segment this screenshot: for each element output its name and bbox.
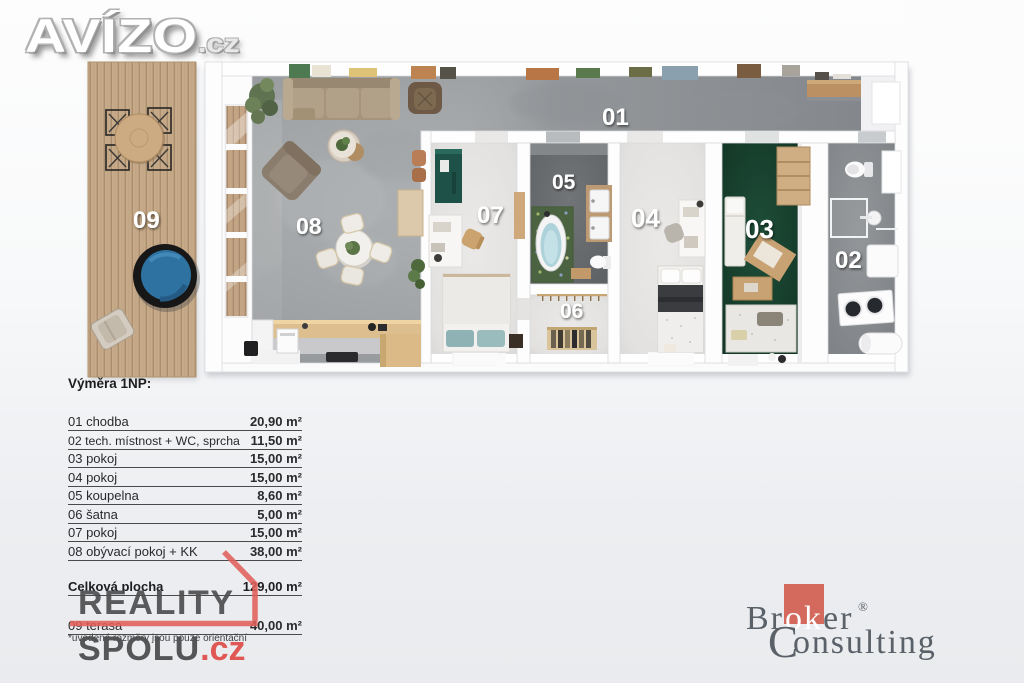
svg-text:®: ® [858,599,868,614]
svg-text:onsulting: onsulting [793,624,937,661]
